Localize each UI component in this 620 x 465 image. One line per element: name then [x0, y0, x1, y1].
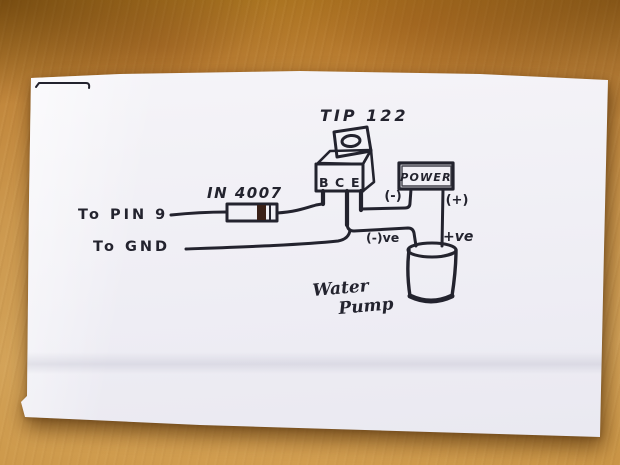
pump-left-side — [408, 250, 410, 296]
power-label: POWER — [400, 171, 452, 184]
transistor-tab-hole-icon — [341, 135, 360, 148]
power-negative-label: (-) — [384, 189, 401, 204]
wire-gnd — [186, 230, 350, 249]
power-positive-label: (+) — [446, 193, 469, 208]
pump-negative-label: (-)ve — [366, 230, 399, 245]
wire-pin9-lead — [171, 212, 227, 215]
diode-label: IN 4007 — [207, 184, 283, 202]
input-gnd-label: To GND — [93, 239, 170, 255]
pump-right-side — [452, 250, 456, 296]
transistor-tab — [334, 127, 371, 157]
pump-positive-label: +ve — [443, 229, 473, 245]
transistor-pin-b-label: B — [319, 175, 329, 190]
transistor-label: TIP 122 — [320, 106, 409, 125]
circuit-sketch: TIP 122 B C E To PIN 9 To GND IN 4007 — [0, 0, 620, 465]
transistor-pin-e-label: E — [351, 175, 360, 190]
transistor-body-side — [363, 150, 374, 191]
pump-bottom-arc — [410, 296, 452, 301]
pump-caption-line2: Pump — [337, 294, 395, 319]
wire-diode-to-base — [277, 204, 322, 213]
diode-cathode-band — [257, 205, 266, 220]
transistor-pin-c-label: C — [335, 175, 344, 190]
input-pin9-label: To PIN 9 — [78, 207, 168, 223]
blue-pen-mark — [36, 83, 89, 88]
photo-scene: TIP 122 B C E To PIN 9 To GND IN 4007 — [0, 0, 620, 465]
